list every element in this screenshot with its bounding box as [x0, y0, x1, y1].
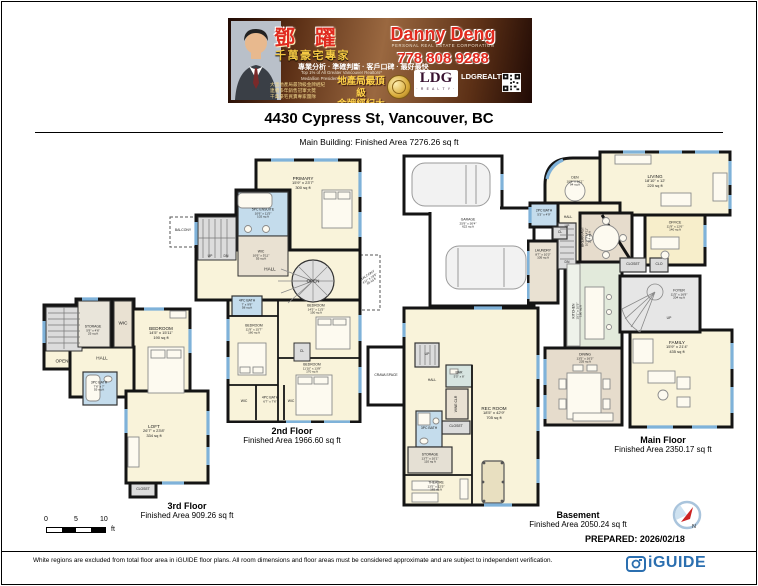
- room-label-ensuite: 5PC ENSUITE10'6" x 11'5"102 sq ft: [252, 209, 274, 220]
- scale-unit: ft: [111, 526, 115, 533]
- room-label-bath-bottom: 4PC BATH6'7" x 7'6": [262, 396, 278, 403]
- floorplan-basement-drawing: [362, 303, 542, 508]
- room-label-living: LIVING18'10" x 12'220 sq ft: [645, 174, 666, 188]
- scale-label-10: 10: [100, 516, 108, 523]
- agent-name: Danny Deng: [378, 24, 508, 45]
- room-label-wine: WINE CLR: [455, 396, 459, 413]
- floorplan-garage-drawing: [396, 150, 536, 310]
- room-label-open: OPEN: [306, 278, 319, 283]
- gold-medallion-icon: [387, 75, 411, 99]
- caption-2nd-floor: 2nd FloorFinished Area 1966.60 sq ft: [217, 426, 367, 445]
- disclaimer-text: White regions are excluded from total fl…: [33, 557, 552, 564]
- footer-divider: [2, 551, 756, 552]
- room-label-hall: HALL: [428, 379, 436, 383]
- title-divider: [35, 132, 723, 133]
- room-label-rec-room: REC ROOM18'5" x 42'9"705 sq ft: [481, 406, 506, 420]
- iguide-camera-icon: [626, 554, 646, 572]
- room-label-bath: 3PC BATH: [421, 427, 437, 431]
- stair-label-up-foyer: UP: [667, 317, 672, 321]
- stair-label-up: UP: [425, 353, 430, 357]
- compass-north-label: N: [692, 524, 696, 530]
- room-label-den: DEN10'9" x 10'1"94 sq ft: [567, 177, 584, 188]
- agent-banner: 鄧 躍 千萬豪宅專家 專業分析 · 準確判斷 · 客戶口碑 · 最好最快 Top…: [228, 18, 532, 103]
- room-label-office: OFFICE11'9" x 12'6"140 sq ft: [667, 222, 684, 233]
- agent-phone: 778 808 9288: [380, 50, 506, 67]
- floorplan-main-floor-drawing: [527, 147, 740, 437]
- award-line-3: 千萬豪宅買賣專家團隊: [270, 94, 316, 100]
- room-label-cl: CL: [558, 231, 562, 235]
- room-label-wic-top: WIC10'6" x 5'11"55 sq ft: [253, 251, 270, 262]
- room-label-closet: CLOSET: [449, 425, 463, 429]
- credential-line-1: Top 1% of All Greater Vancouver Realtors…: [301, 70, 382, 75]
- room-label-hall: HALL: [564, 216, 572, 220]
- building-area-subtitle: Main Building: Finished Area 7276.26 sq …: [0, 137, 758, 147]
- room-label-storage: STORAGE13'7" x 10'1"110 sq ft: [422, 454, 439, 465]
- floorplan-2nd-floor-drawing: [166, 157, 386, 423]
- room-label-wic-a: WIC: [241, 400, 248, 404]
- floorplan-main-floor: DEN10'9" x 10'1"94 sq ft LIVING18'10" x …: [527, 147, 740, 437]
- floorplan-page: 鄧 躍 千萬豪宅專家 專業分析 · 準確判斷 · 客戶口碑 · 最好最快 Top…: [0, 0, 758, 586]
- stair-label-up: UP: [208, 255, 213, 259]
- room-label-bar: BAR5'5" x 8': [454, 371, 465, 378]
- floorplan-garage: GARAGE25'9" x 30'4"622 sq ft: [396, 150, 536, 310]
- prepared-date: PREPARED: 2026/02/18: [545, 534, 725, 544]
- agent-title-chinese: 千萬豪宅專家: [275, 47, 350, 63]
- room-label-hall: HALL: [96, 355, 108, 360]
- room-label-bedroom-right-top: BEDROOM14'5" x 11'5"150 sq ft: [307, 305, 325, 316]
- room-label-cl: CL: [300, 350, 304, 354]
- gold-award-text: 地產局最頂級 金牌經紀大獎: [336, 76, 386, 103]
- room-label-wic: WIC: [119, 320, 128, 325]
- stair-label-dn: DN: [565, 261, 570, 265]
- agent-subtitle: PERSONAL REAL ESTATE CORPORATION: [380, 43, 506, 48]
- room-label-bedroom-right-bottom: BEDROOM11'10" x 13'8"170 sq ft: [303, 364, 321, 375]
- stair-label-dn: DN: [224, 255, 229, 259]
- scale-label-5: 5: [74, 516, 78, 523]
- room-label-bath2: 2PC BATH5'3" x 4'9": [536, 209, 552, 216]
- room-label-storage: STORAGE5'9" x 4'6"25 sq ft: [85, 326, 102, 337]
- room-label-bath: 3PC BATH7'6" x 7'55 sq ft: [91, 382, 107, 393]
- room-label-crawlspace: CRAWLSPACE: [374, 374, 397, 378]
- room-label-loft: LOFT26'7" x 23'8"334 sq ft: [143, 424, 165, 438]
- room-label-balcony-left: BALCONY: [175, 229, 191, 233]
- floorplan-basement: CRAWLSPACE UP HALL BAR5'5" x 8' WINE CLR…: [362, 303, 542, 508]
- room-label-hall: HALL: [264, 266, 276, 271]
- room-label-clo: CLO: [656, 263, 663, 267]
- room-label-primary: PRIMARY15'9" x 23'7"300 sq ft: [292, 176, 314, 190]
- compass-icon: N: [670, 499, 706, 533]
- caption-main-floor: Main FloorFinished Area 2350.17 sq ft: [588, 435, 738, 454]
- room-label-theatre: THEATRE13'5" x 12'5"165 sq ft: [428, 482, 445, 493]
- iguide-wordmark: iGUIDE: [648, 554, 706, 572]
- room-label-wic-b: WIC: [288, 400, 295, 404]
- iguide-logo: iGUIDE: [626, 554, 706, 572]
- room-label-garage: GARAGE25'9" x 30'4"622 sq ft: [460, 219, 477, 230]
- scale-bar: [46, 527, 106, 533]
- brokerage-logo: LDG · R E A L T Y ·: [414, 70, 458, 97]
- caption-3rd-floor: 3rd FloorFinished Area 909.26 sq ft: [112, 501, 262, 520]
- scale-label-0: 0: [44, 516, 48, 523]
- qr-code-icon: [502, 73, 521, 92]
- room-label-foyer: FOYER11'5" x 16'9"204 sq ft: [671, 290, 688, 301]
- room-label-dining: DINING13'5" x 16'3"235 sq ft: [577, 354, 594, 365]
- room-label-laundry: LAUNDRY8'7" x 10'3"105 sq ft: [535, 250, 551, 261]
- room-label-closet: CLOSET: [136, 488, 150, 492]
- floorplan-2nd-floor: PRIMARY15'9" x 23'7"300 sq ft 5PC ENSUIT…: [166, 157, 386, 423]
- room-label-breakfast: BREAKFAST10'7" x 14'11"214 sq ft: [582, 227, 593, 247]
- room-label-family: FAMILY15'9" x 21'4"435 sq ft: [666, 340, 688, 354]
- room-label-kitchen: KITCHEN15'1" x 10'5"160 sq ft: [573, 303, 584, 320]
- stair-label-up: UP: [565, 225, 570, 229]
- caption-basement: BasementFinished Area 2050.24 sq ft: [503, 510, 653, 529]
- property-address-title: 4430 Cypress St, Vancouver, BC: [0, 110, 758, 127]
- room-label-bedroom-left: BEDROOM11'9" x 15'7"160 sq ft: [245, 325, 263, 336]
- room-label-open: OPEN: [55, 358, 68, 363]
- room-label-closet: CLOSET: [626, 263, 640, 267]
- room-label-bath-top: 4PC BATH7' x 9'9"58 sq ft: [239, 300, 255, 311]
